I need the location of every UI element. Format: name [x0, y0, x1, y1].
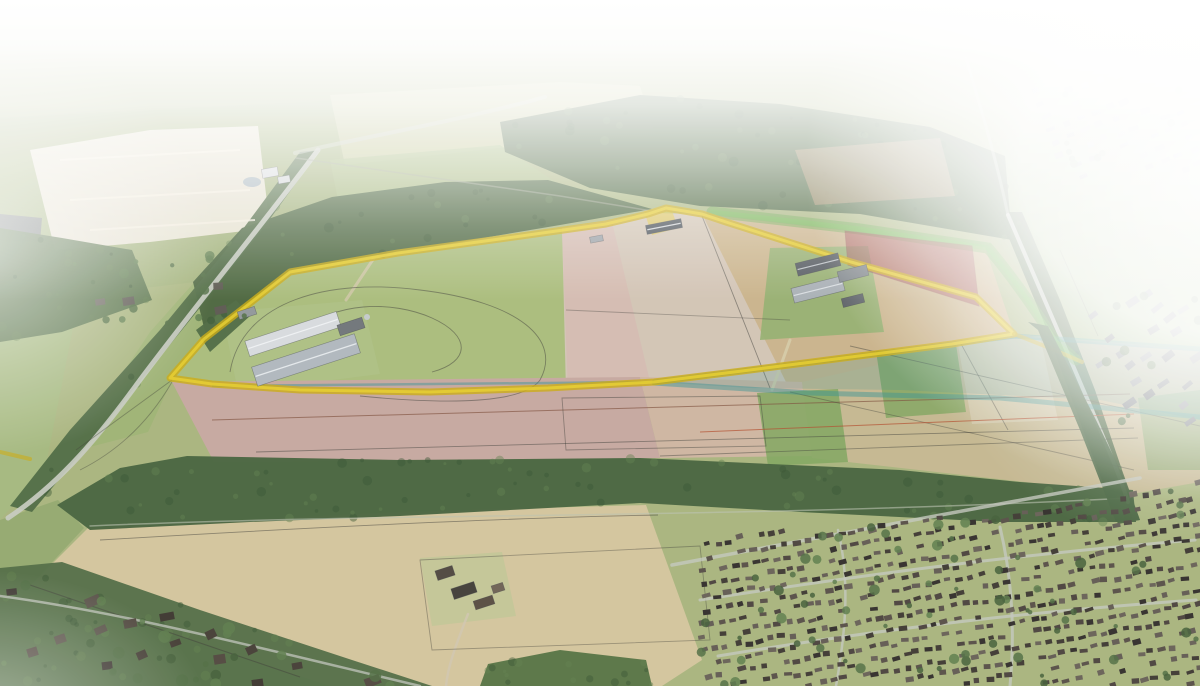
haze-layer — [0, 0, 1200, 686]
aerial-site-visualization — [0, 0, 1200, 686]
aerial-scene-svg — [0, 0, 1200, 686]
white-veil — [0, 0, 1200, 686]
